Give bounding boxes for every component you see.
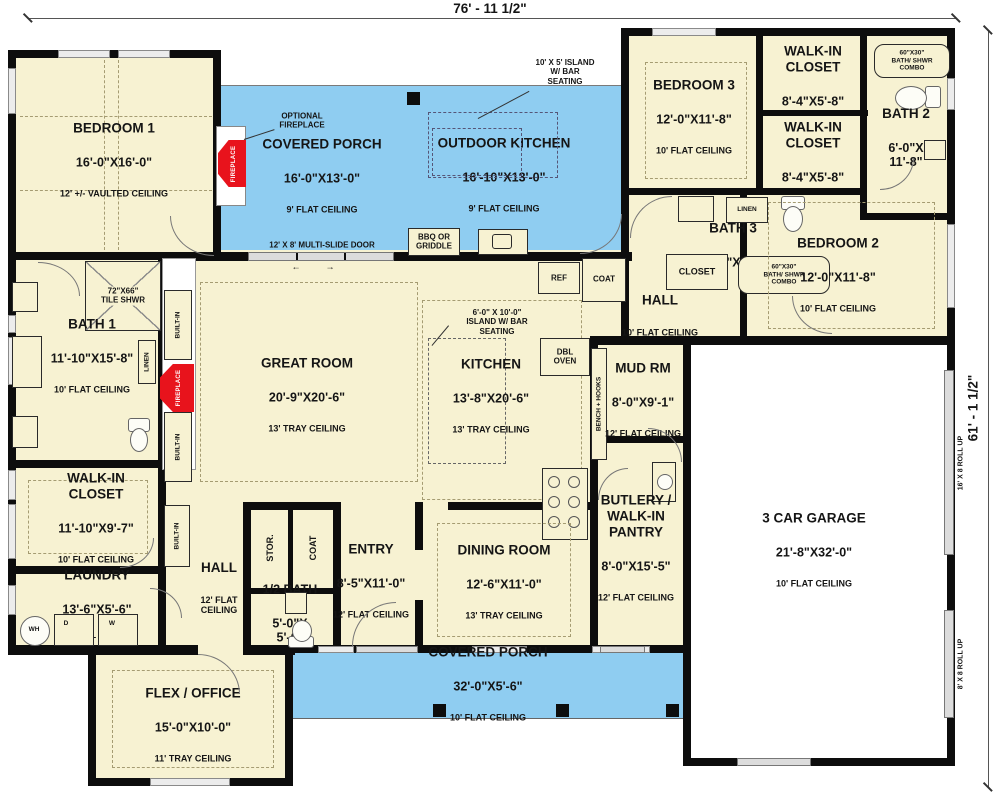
room-label-walk-in-closet-2: WALK-IN CLOSET 8'-4"X5'-8" <box>782 100 844 203</box>
floor-plan: 76' - 11 1/2" 61' - 1 1/2" <box>0 0 1003 800</box>
garage-rollup-door-8 <box>944 610 954 718</box>
bath2-tub-label: 60"X30" BATH/ SHWR COMBO <box>891 50 932 73</box>
kitchen-island-note: 6'-0" X 10'-0" ISLAND W/ BAR SEATING <box>466 308 527 336</box>
half-bath-vanity <box>285 592 307 614</box>
dryer-label: D <box>64 620 69 628</box>
dryer <box>54 614 94 646</box>
bath1-vanity <box>12 336 42 388</box>
rollup-8-label: 8' X 8 ROLL UP <box>958 639 965 690</box>
room-label-bedroom-3: BEDROOM 3 12'-0"X11'-8" 10' FLAT CEILING <box>653 59 735 176</box>
door-divider <box>296 253 298 260</box>
wall <box>243 502 251 650</box>
built-in-label: BUILT-IN <box>174 523 181 550</box>
window <box>318 646 354 653</box>
burner <box>548 496 560 508</box>
window <box>8 68 16 114</box>
room-label-hall-left: HALL 12' FLAT CEILING <box>201 541 238 635</box>
wall <box>243 502 340 510</box>
room-label-kitchen: KITCHEN 13'-8"X20'-6" 13' TRAY CEILING <box>452 338 529 455</box>
burner <box>568 476 580 488</box>
wall <box>683 758 955 766</box>
window <box>8 315 16 333</box>
wall <box>621 28 629 263</box>
garage-rollup-door-16 <box>944 370 954 555</box>
room-label-garage: 3 CAR GARAGE 21'-8"X32'-0" 10' FLAT CEIL… <box>762 492 866 609</box>
window <box>118 50 170 58</box>
overall-height-dimension: 61' - 1 1/2" <box>966 375 981 442</box>
linen-label: LINEN <box>144 352 151 372</box>
multi-slide-door <box>248 252 394 261</box>
butlery-porch-door <box>600 646 645 653</box>
arrow-right: → <box>326 262 335 273</box>
room-label-bath-1: BATH 1 11'-10"X15'-8" 10' FLAT CEILING <box>51 298 133 415</box>
wall <box>285 650 293 786</box>
wall <box>8 50 220 58</box>
fireplace-label: FIREPLACE <box>231 146 237 183</box>
bench-hooks-label: BENCH + HOOKS <box>596 377 603 431</box>
built-in-label: BUILT-IN <box>175 434 182 461</box>
door-divider <box>344 253 346 260</box>
fireplace-label: FIREPLACE <box>176 370 182 407</box>
arrow-left: ← <box>292 262 301 273</box>
bath1-vanity <box>12 282 38 312</box>
wall <box>415 502 423 550</box>
room-label-butlery: BUTLERY / WALK-IN PANTRY 8'-0"X15'-5" 12… <box>598 474 674 623</box>
wall <box>8 252 173 260</box>
wall <box>683 336 691 766</box>
wall <box>160 252 632 261</box>
built-in-label: BUILT-IN <box>175 312 182 339</box>
ref-label: REF <box>551 273 567 282</box>
window <box>652 28 716 36</box>
wh-label: WH <box>29 626 40 634</box>
right-dimension-line <box>988 30 989 787</box>
porch-post <box>407 92 420 105</box>
room-label-dining: DINING ROOM 12'-6"X11'-0" 13' TRAY CEILI… <box>458 524 551 641</box>
stor-label: STOR. <box>265 534 275 561</box>
window <box>947 78 955 110</box>
coat-closet-label: COAT <box>593 274 615 283</box>
bath1-vanity <box>12 416 38 448</box>
toilet <box>130 428 148 452</box>
overall-width-dimension: 76' - 11 1/2" <box>453 1 526 17</box>
multi-slide-door-label: 12' X 8' MULTI-SLIDE DOOR <box>269 240 374 249</box>
toilet <box>292 620 312 642</box>
room-label-covered-porch-bottom: COVERED PORCH 32'-0"X5'-6" 10' FLAT CEIL… <box>428 626 547 743</box>
porch-post <box>433 704 446 717</box>
top-dimension-line <box>28 18 956 19</box>
washer-label: W <box>109 620 115 628</box>
window <box>8 504 16 559</box>
burner <box>568 496 580 508</box>
wall <box>88 650 96 786</box>
window <box>947 224 955 308</box>
washer <box>98 614 138 646</box>
room-label-covered-porch-top: COVERED PORCH 16'-0"X13'-0" 9' FLAT CEIL… <box>262 118 381 235</box>
outdoor-sink <box>492 234 512 249</box>
rollup-16-label: 16' X 8 ROLL UP <box>958 436 965 490</box>
room-label-great-room: GREAT ROOM 20'-9"X20'-6" 13' TRAY CEILIN… <box>261 337 353 454</box>
outdoor-island-outline-inner <box>432 128 522 176</box>
room-label-half-bath: 1/2 BATH 5'-0"X 5'-6" <box>263 564 318 665</box>
window <box>8 585 16 615</box>
porch-post <box>556 704 569 717</box>
burner <box>548 476 560 488</box>
bbq-label: BBQ OR GRIDDLE <box>416 233 452 252</box>
room-label-laundry: LAUNDRY 13'-6"X5'-6" 10' FLAT CEILING <box>59 549 135 666</box>
room-label-bedroom-1: BEDROOM 1 16'-0"X16'-0" 12' +/- VAULTED … <box>60 102 168 219</box>
window <box>8 470 16 500</box>
wall <box>415 600 423 652</box>
porch-post <box>666 704 679 717</box>
outdoor-island-note: 10' X 5' ISLAND W/ BAR SEATING <box>536 58 595 86</box>
dbl-oven-label: DBL OVEN <box>554 348 577 367</box>
garage-rear-door <box>737 758 811 766</box>
front-door <box>356 646 418 653</box>
coat-label: COAT <box>308 536 318 561</box>
window <box>58 50 110 58</box>
